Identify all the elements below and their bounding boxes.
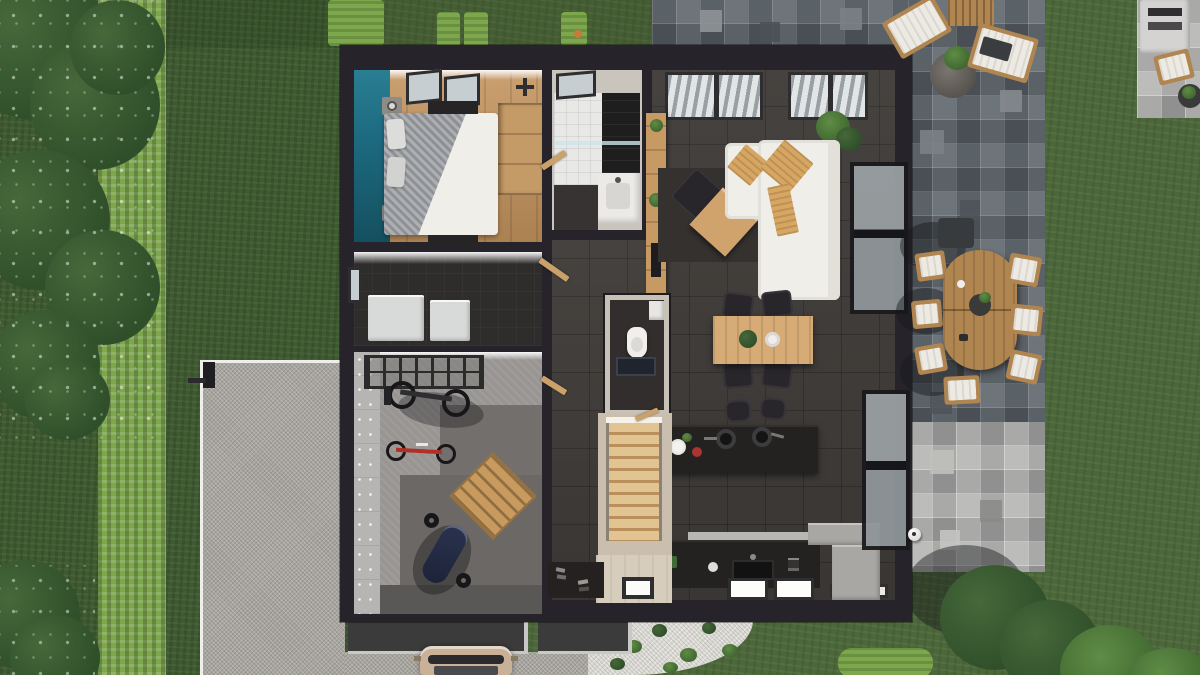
gate-post: [203, 362, 215, 388]
garage-wall-panel: [354, 352, 380, 614]
sofa-backrest: [828, 140, 840, 300]
tree-blossoms: [0, 0, 165, 440]
shoe: [556, 567, 566, 573]
outdoor-chair: [1009, 303, 1044, 336]
ceiling-fan-icon: [516, 78, 534, 96]
car-roof-glass: [434, 666, 498, 675]
paver: [840, 8, 862, 30]
faucet: [750, 554, 756, 560]
east-window: [850, 162, 908, 314]
shower-glass-panel: [554, 141, 640, 145]
grill-grate: [1148, 8, 1182, 16]
faucet: [615, 177, 621, 183]
outdoor-chair: [911, 299, 943, 330]
hedge-patch: [328, 0, 384, 46]
bike-wheel: [442, 389, 470, 417]
floorplan-scene: [0, 0, 1200, 675]
grill-grate: [1148, 22, 1182, 30]
shoe: [579, 586, 589, 591]
outdoor-chair: [1005, 349, 1043, 385]
kettle: [708, 562, 718, 572]
pillow: [386, 118, 407, 149]
outdoor-kitchen-unit: [1140, 0, 1190, 54]
staircase: [606, 423, 662, 541]
doormat: [548, 562, 604, 598]
paver: [700, 10, 722, 32]
sink-basin: [606, 183, 630, 209]
lamp: [387, 101, 397, 111]
bathroom-floor-dark: [554, 185, 598, 230]
table-centerpiece: [969, 294, 991, 316]
stone-patio-top: [652, 0, 910, 48]
utility-window: [348, 267, 362, 303]
bbq-side-table: [948, 0, 994, 26]
table-item: [959, 334, 968, 341]
motorcycle-wheel: [456, 573, 471, 588]
pan-handle: [771, 432, 784, 438]
bike-handlebar: [384, 387, 391, 405]
shoe: [557, 574, 566, 579]
shower-accent-wall: [602, 93, 640, 185]
patio-pot: [1178, 84, 1200, 108]
gravel-driveway: [203, 362, 345, 675]
garage-door-zone: [380, 585, 542, 614]
table-cup: [957, 280, 965, 288]
outdoor-chair: [914, 343, 948, 376]
dining-chair: [761, 290, 794, 319]
dining-chair: [761, 361, 794, 390]
tree-blossoms: [0, 565, 95, 675]
bar-stool: [724, 399, 751, 423]
corner-sink: [649, 301, 664, 320]
outdoor-chair-dark: [938, 218, 974, 248]
paver: [980, 500, 1002, 522]
toaster: [788, 558, 799, 571]
kitchen-window: [728, 578, 768, 600]
bathroom-window: [556, 70, 596, 99]
red-bike-detail: [416, 443, 428, 446]
double-bed: [384, 113, 498, 235]
pan-handle: [704, 437, 717, 440]
red-item: [692, 447, 702, 457]
wardrobe: [498, 103, 542, 195]
flower-orange: [574, 30, 582, 38]
bed-head-shelf: [428, 101, 478, 114]
entry-porch-slab: [538, 618, 632, 654]
herb-pot: [682, 433, 692, 442]
living-window-blinds: [665, 72, 763, 120]
bed-plant: [680, 648, 697, 662]
bed-plant: [610, 658, 625, 670]
counter-edge: [688, 532, 813, 540]
shelving-rack: [364, 355, 484, 389]
toilet: [627, 327, 647, 358]
hedge-patch: [464, 12, 488, 48]
paver: [920, 130, 944, 154]
bush: [838, 648, 933, 675]
table-bowl: [765, 332, 780, 347]
pan: [716, 429, 736, 449]
window-bench: [832, 545, 880, 600]
kitchen-sink: [732, 560, 774, 580]
planter-plant: [944, 46, 970, 70]
driveway-edge-line-top: [203, 360, 345, 363]
pillow: [386, 156, 406, 187]
paver: [930, 450, 954, 474]
car-mirror: [414, 656, 421, 661]
bed-plant: [702, 622, 716, 634]
hedge-patch: [437, 12, 460, 48]
bar-stool: [759, 397, 787, 421]
dining-table: [713, 316, 813, 364]
gate-arm: [188, 378, 206, 383]
east-window: [862, 390, 910, 550]
wc-mat: [616, 357, 656, 376]
paver: [760, 22, 780, 42]
outdoor-chair: [943, 375, 980, 405]
hedge-patch: [561, 12, 587, 46]
soccer-ball: [908, 528, 921, 541]
vanity-sink: [598, 173, 640, 223]
dryer: [430, 300, 470, 341]
table-plant: [739, 330, 757, 348]
bed-plant: [663, 662, 678, 673]
bed-end-bench: [428, 235, 478, 248]
paver: [1000, 90, 1022, 112]
plant: [650, 119, 663, 132]
bed-plant: [722, 644, 738, 657]
utility-lit-wall: [354, 252, 542, 264]
shoe: [578, 579, 589, 585]
dining-chair: [722, 361, 754, 390]
front-door-glazing: [622, 577, 654, 599]
washing-machine: [368, 295, 424, 341]
motorcycle-wheel: [424, 513, 439, 528]
kitchen-window: [774, 578, 814, 600]
oval-dining-table: [943, 250, 1017, 370]
pan: [752, 427, 772, 447]
bed-plant: [652, 624, 667, 637]
driveway-edge-line: [200, 360, 203, 675]
kitchen-island: [658, 425, 818, 473]
car: [420, 646, 512, 675]
paver: [960, 200, 980, 220]
car-mirror: [511, 656, 518, 661]
wc-room: [605, 295, 669, 415]
outdoor-chair: [1006, 252, 1043, 287]
car-windshield: [428, 655, 504, 664]
bedroom-skylight-window: [406, 69, 442, 105]
house: [340, 45, 912, 622]
